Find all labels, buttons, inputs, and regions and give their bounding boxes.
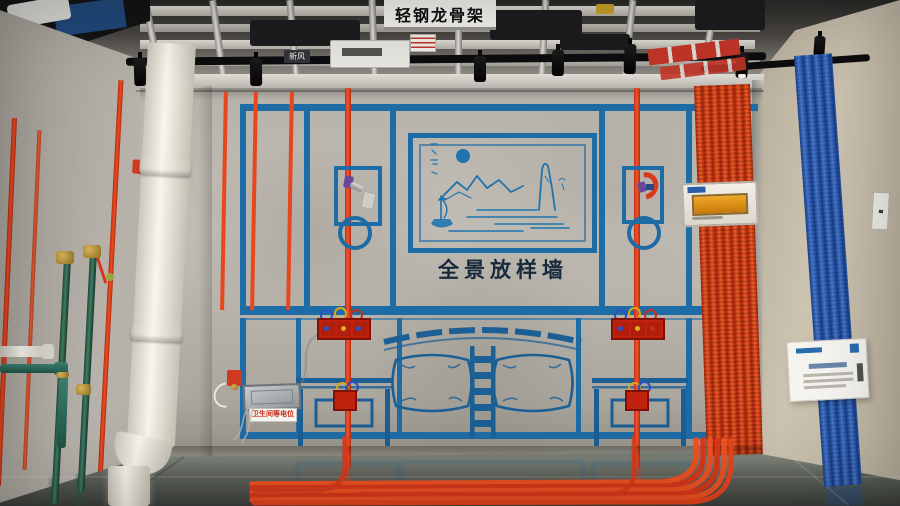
track-spotlight [250, 58, 262, 86]
tape-circle-right [627, 216, 661, 250]
right-wall-mini-label [871, 192, 890, 231]
placard-text-line [804, 378, 854, 384]
tape-vertical [390, 104, 396, 314]
socket-box-single-left [333, 390, 357, 411]
teal-pipe-horizontal [0, 364, 62, 373]
valve-brass-tip [231, 384, 238, 390]
socket-box-single-right [625, 390, 649, 411]
left-corner-shadow [198, 86, 212, 466]
tape-vertical [304, 104, 310, 314]
track-spotlight [134, 58, 147, 86]
construction-showroom-photo: 新风 轻钢龙骨架 [0, 0, 900, 506]
fresh-air-vent-slot [342, 48, 382, 56]
red-conduit-right [634, 88, 640, 468]
junction-wires [226, 404, 266, 444]
pvc-coupling [139, 158, 192, 177]
socket-box-3gang-left [317, 318, 371, 340]
junction-box-plate [251, 389, 293, 404]
wall-title: 全景放样墙 [420, 254, 586, 284]
wire-dot [650, 326, 655, 331]
placard-side-chip [857, 363, 864, 381]
pvc-floor-stub [108, 466, 150, 506]
placard-title-bar [809, 362, 847, 369]
info-placard [786, 338, 869, 402]
socket-cell [353, 322, 367, 336]
tape-line-top [240, 104, 758, 111]
wire-dot [356, 326, 361, 331]
socket-cell [647, 322, 661, 336]
tape-vertical [240, 104, 246, 314]
ceiling-equipment [560, 34, 630, 50]
pvc-coupling [130, 326, 183, 343]
floor-pipe-runs [240, 436, 760, 506]
wire-dot [341, 326, 346, 331]
tape-vertical [599, 104, 605, 314]
pvc-stub-cap [42, 344, 54, 359]
placard-text-line [804, 384, 846, 389]
placard-brand-bar [796, 347, 822, 353]
ceiling-wall-shadow [140, 88, 762, 100]
ceiling-yellow-cable [596, 4, 614, 14]
socket-cell [615, 322, 629, 336]
placard-logo-square [850, 343, 859, 352]
landscape-art-drawing [411, 136, 585, 241]
ceiling-sticker [410, 34, 436, 52]
label-mark [878, 209, 882, 212]
placard-text-line [803, 372, 853, 378]
wire-fitting [106, 273, 114, 281]
distribution-box-window [692, 193, 749, 216]
brass-ring [56, 372, 69, 378]
wire-dot [324, 326, 329, 331]
distribution-box-label [687, 186, 705, 193]
socket-cell [337, 322, 351, 336]
hang-tag-right [646, 184, 654, 190]
brass-union [76, 384, 91, 395]
distribution-box [681, 181, 758, 228]
ceiling-beam-dark [695, 0, 765, 30]
red-conduit-left [345, 88, 351, 468]
wire-dot [635, 326, 640, 331]
ceiling-sign: 轻钢龙骨架 [384, 0, 496, 30]
bed-outline-drawing [380, 308, 585, 448]
track-spotlight [623, 44, 636, 74]
spotlight-lens [738, 74, 746, 78]
tape-circle-left [338, 216, 372, 250]
wire-dot [618, 326, 623, 331]
socket-cell [631, 322, 645, 336]
socket-box-3gang-right [611, 318, 665, 340]
distribution-box-slot [692, 216, 722, 220]
track-spotlight [552, 50, 564, 76]
fresh-air-label: 新风 [284, 50, 310, 63]
brass-elbow [83, 245, 101, 258]
socket-cell [321, 322, 335, 336]
track-spotlight [474, 56, 486, 82]
brass-elbow [56, 251, 74, 264]
